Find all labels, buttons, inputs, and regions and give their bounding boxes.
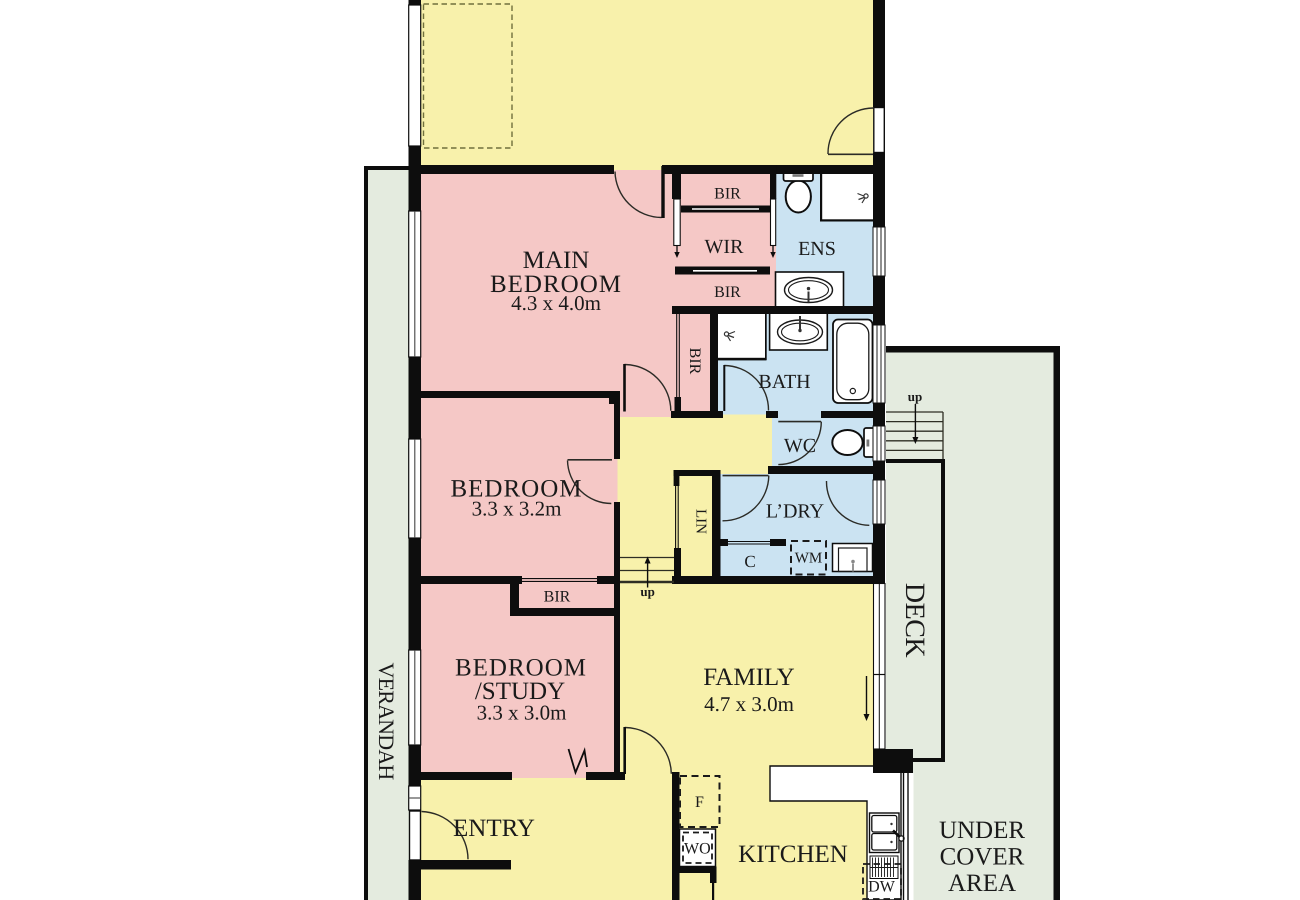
svg-text:C: C: [744, 552, 755, 571]
svg-text:up: up: [640, 584, 654, 599]
svg-text:UNDER: UNDER: [939, 817, 1025, 844]
svg-text:ENTRY: ENTRY: [453, 815, 535, 842]
svg-text:up: up: [908, 389, 922, 404]
svg-text:FAMILY: FAMILY: [703, 664, 794, 691]
svg-text:4.3 x 4.0m: 4.3 x 4.0m: [511, 291, 601, 315]
svg-text:WC: WC: [784, 435, 816, 457]
svg-text:F: F: [695, 794, 704, 811]
svg-text:BATH: BATH: [758, 371, 810, 393]
svg-text:KITCHEN: KITCHEN: [738, 841, 848, 868]
svg-text:LIN: LIN: [693, 509, 709, 534]
svg-text:BIR: BIR: [714, 186, 741, 203]
svg-text:VERANDAH: VERANDAH: [374, 662, 399, 780]
svg-text:BIR: BIR: [544, 589, 571, 606]
svg-text:ENS: ENS: [798, 238, 836, 260]
svg-text:WO: WO: [684, 841, 711, 858]
svg-text:BIR: BIR: [686, 348, 703, 375]
svg-text:AREA: AREA: [948, 870, 1016, 897]
svg-text:WIR: WIR: [705, 236, 745, 258]
svg-text:DW: DW: [868, 879, 896, 896]
svg-text:3.3 x 3.0m: 3.3 x 3.0m: [477, 701, 567, 725]
svg-text:BIR: BIR: [714, 284, 741, 301]
svg-text:4.7 x 3.0m: 4.7 x 3.0m: [704, 692, 794, 716]
svg-text:L’DRY: L’DRY: [766, 501, 824, 523]
svg-text:3.3 x 3.2m: 3.3 x 3.2m: [472, 497, 562, 521]
svg-text:COVER: COVER: [940, 844, 1025, 871]
svg-text:DECK: DECK: [899, 583, 930, 658]
svg-text:WM: WM: [795, 551, 823, 567]
svg-text:MAIN: MAIN: [523, 247, 590, 274]
